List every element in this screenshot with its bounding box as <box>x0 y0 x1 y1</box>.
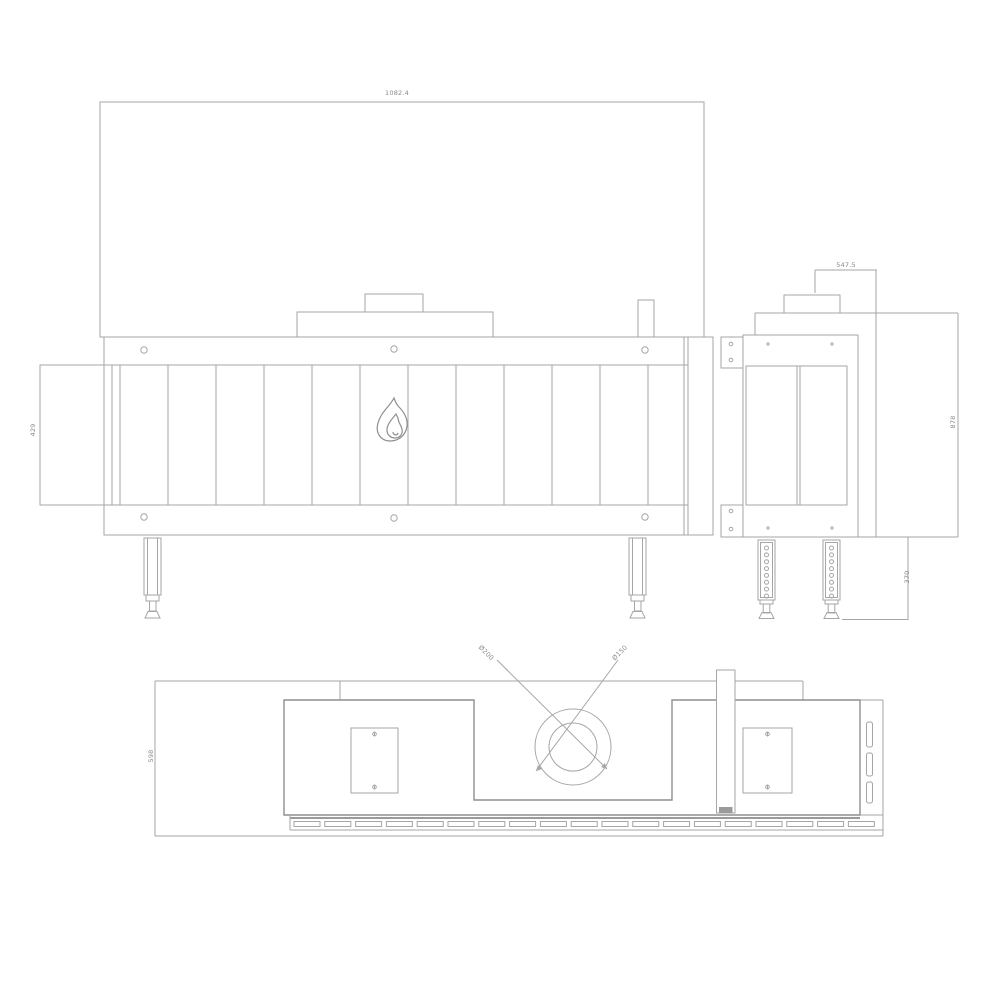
flue-leader-lines <box>497 660 618 771</box>
flame-icon <box>377 398 407 441</box>
plan-end-cap <box>860 700 883 815</box>
side-view <box>721 270 958 620</box>
dim-overall-height-label: 878 <box>950 415 957 428</box>
dim-flue-offset-label: 547.5 <box>836 262 856 269</box>
front-firebox-outline <box>100 102 704 337</box>
plan-vent-strip <box>290 815 883 830</box>
plan-body-outline <box>284 700 860 815</box>
technical-drawing-canvas <box>0 0 1000 1000</box>
plan-view <box>155 660 883 836</box>
technical-drawing-page: 1082.4 429 547.5 878 370 598 Ø200 Ø150 <box>0 0 1000 1000</box>
gas-pipe <box>717 670 736 813</box>
dim-front-opening-height-label: 429 <box>30 423 37 436</box>
front-louvre-lines <box>112 365 648 505</box>
dim-front-width-label: 1082.4 <box>385 90 409 97</box>
front-view <box>40 102 713 618</box>
flue-inner-circle <box>549 723 597 771</box>
side-legs <box>758 540 840 619</box>
dim-leg-height-label: 370 <box>904 570 911 583</box>
front-legs <box>144 538 646 618</box>
front-screw-holes <box>141 346 648 521</box>
dim-plan-depth-label: 598 <box>148 749 155 762</box>
